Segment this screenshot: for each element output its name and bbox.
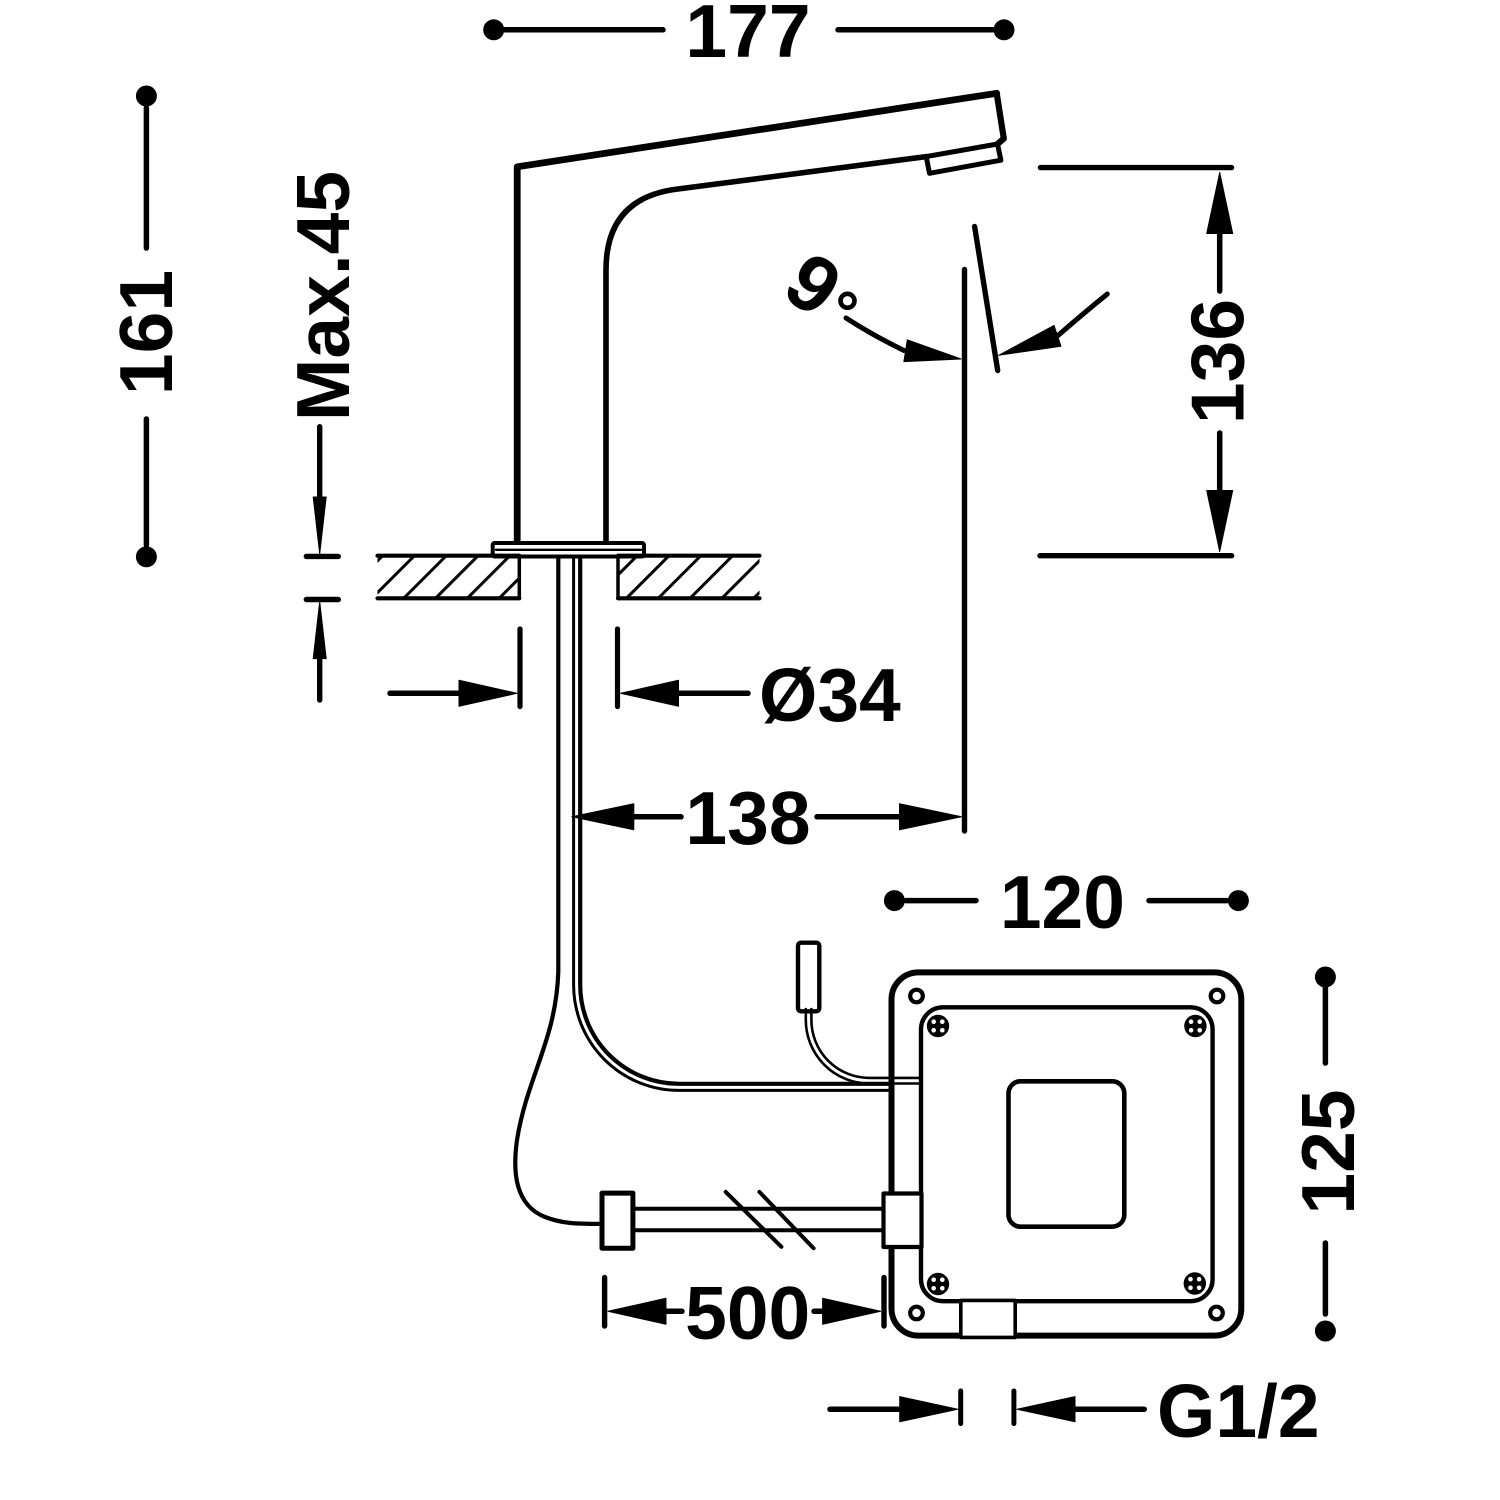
svg-text:161: 161 <box>104 270 188 395</box>
svg-text:136: 136 <box>1176 299 1260 424</box>
svg-text:Ø34: Ø34 <box>759 653 901 737</box>
svg-text:120: 120 <box>1000 860 1125 944</box>
svg-text:G1/2: G1/2 <box>1157 1369 1320 1453</box>
svg-text:Max.45: Max.45 <box>281 171 365 421</box>
svg-text:138: 138 <box>685 776 810 860</box>
svg-text:125: 125 <box>1286 1089 1370 1214</box>
svg-text:500: 500 <box>685 1271 810 1355</box>
svg-text:177: 177 <box>685 0 810 73</box>
